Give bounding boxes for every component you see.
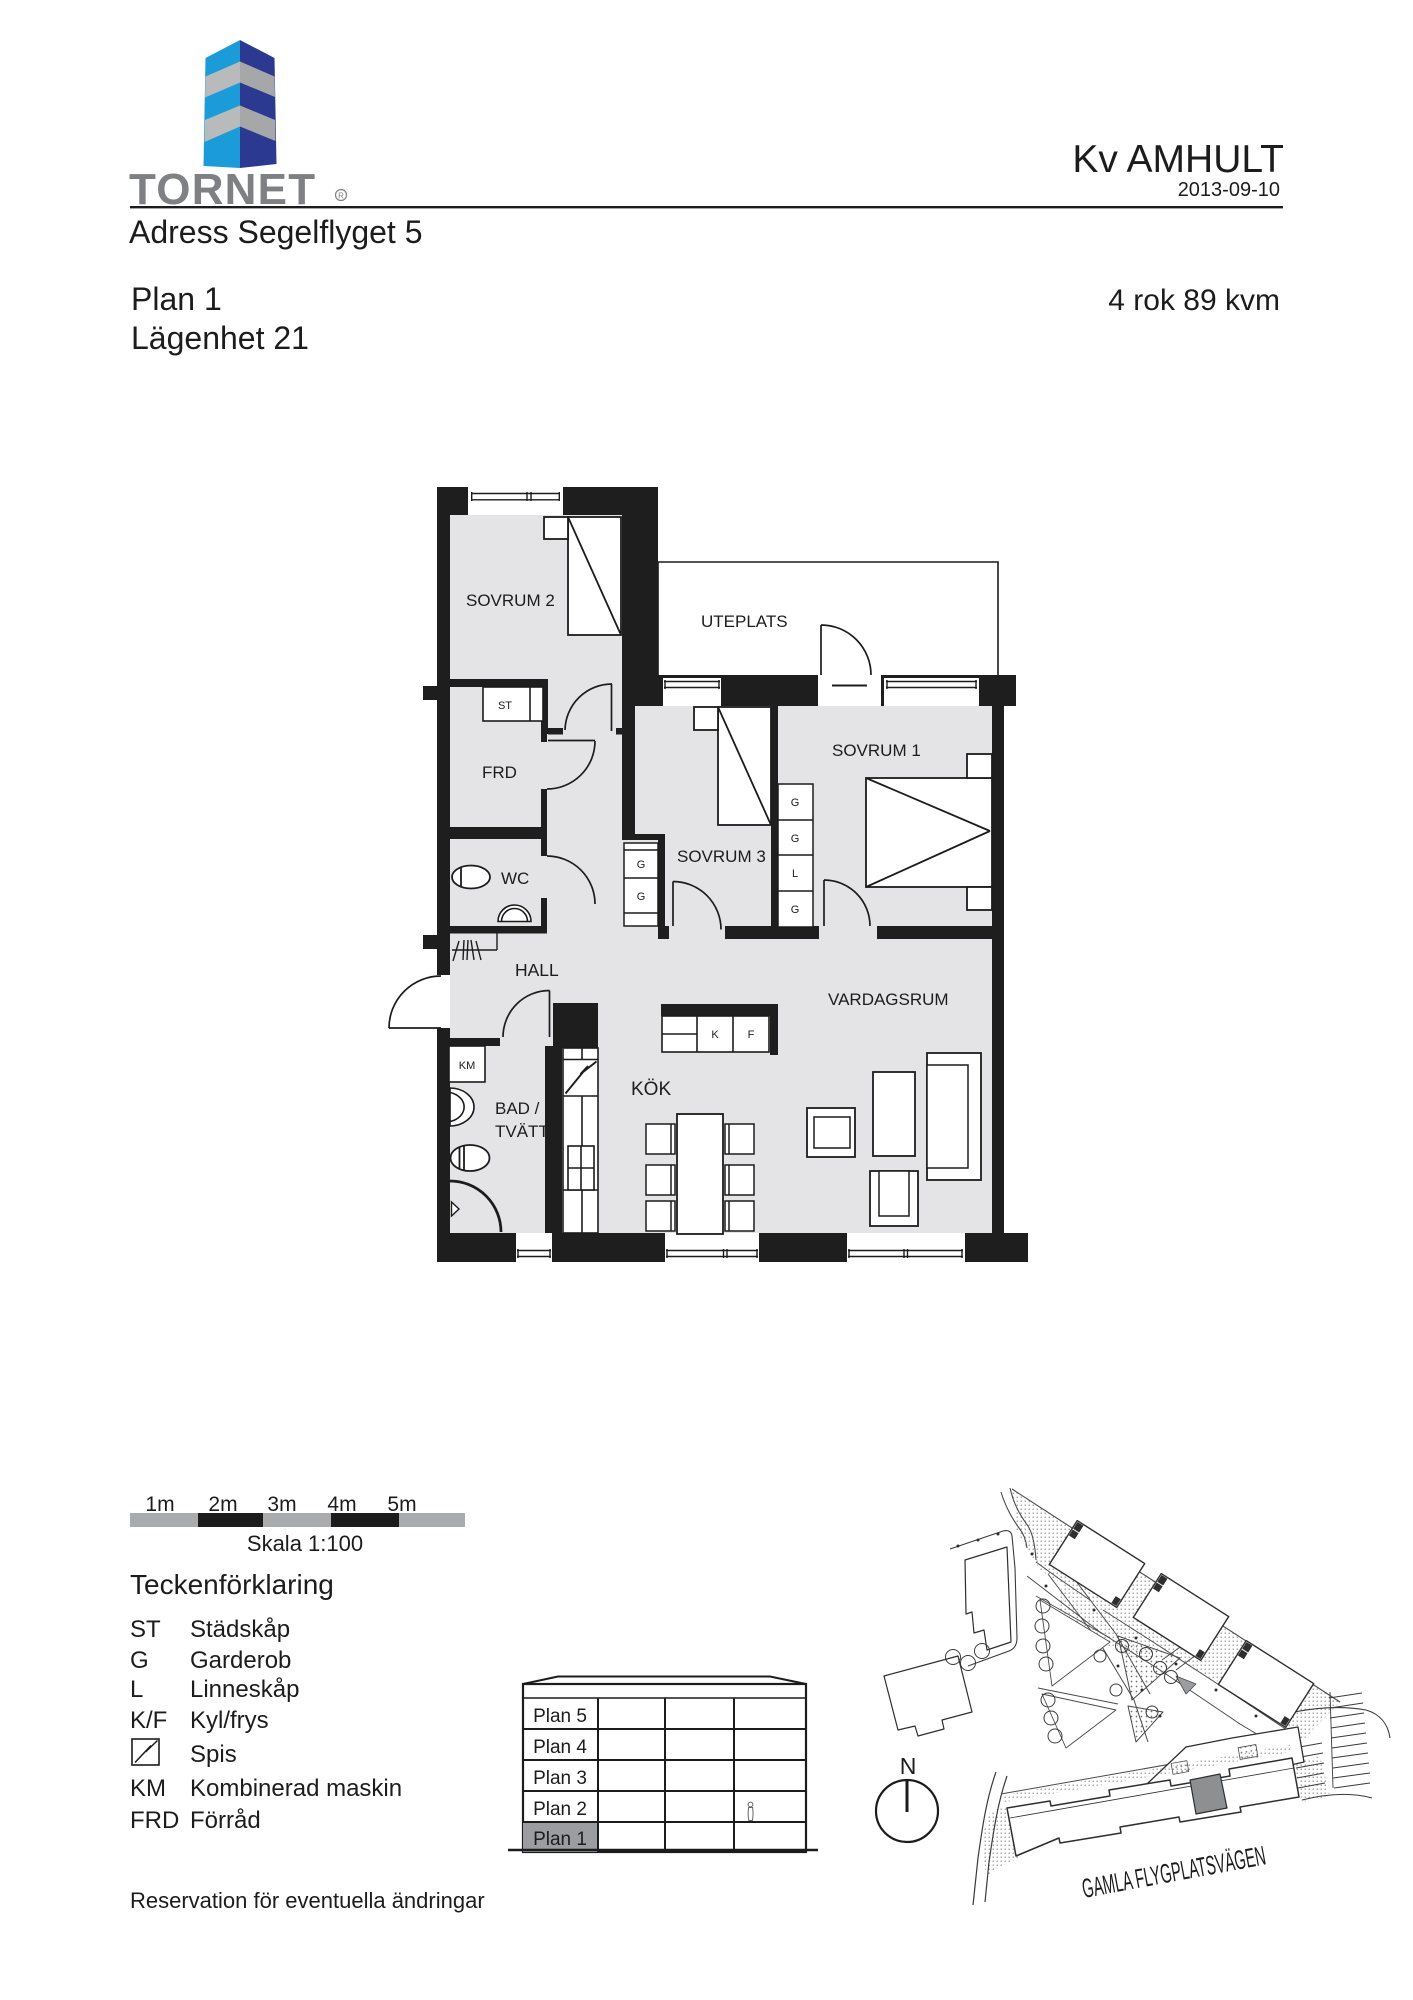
svg-text:4 rok 89 kvm: 4 rok 89 kvm <box>1108 284 1280 317</box>
svg-text:KM: KM <box>130 1775 166 1802</box>
svg-text:4m: 4m <box>327 1493 356 1516</box>
svg-text:HALL: HALL <box>515 960 559 980</box>
svg-text:SOVRUM 3: SOVRUM 3 <box>677 847 766 866</box>
svg-text:Skala 1:100: Skala 1:100 <box>247 1531 363 1556</box>
svg-text:Linneskåp: Linneskåp <box>190 1676 299 1703</box>
svg-text:F: F <box>748 1029 755 1041</box>
svg-text:Reservation för eventuella änd: Reservation för eventuella ändringar <box>130 1888 485 1913</box>
svg-text:KM: KM <box>459 1060 476 1072</box>
svg-text:L: L <box>792 868 798 880</box>
svg-text:Förråd: Förråd <box>190 1807 261 1834</box>
svg-text:BAD /: BAD / <box>495 1099 540 1118</box>
svg-text:N: N <box>900 1753 917 1779</box>
svg-text:Plan 1: Plan 1 <box>131 281 222 317</box>
svg-text:2013-09-10: 2013-09-10 <box>1178 179 1280 201</box>
svg-text:KÖK: KÖK <box>631 1079 671 1100</box>
svg-text:ST: ST <box>130 1616 161 1643</box>
svg-text:G: G <box>637 891 646 903</box>
svg-text:K/F: K/F <box>130 1707 167 1734</box>
svg-text:Kombinerad maskin: Kombinerad maskin <box>190 1775 402 1802</box>
svg-text:FRD: FRD <box>130 1807 179 1834</box>
svg-text:3m: 3m <box>267 1493 296 1516</box>
svg-text:TVÄTT: TVÄTT <box>495 1122 549 1141</box>
svg-text:Garderob: Garderob <box>190 1647 291 1674</box>
svg-text:G: G <box>791 833 800 845</box>
svg-text:SOVRUM 1: SOVRUM 1 <box>832 741 921 760</box>
svg-text:Kyl/frys: Kyl/frys <box>190 1707 269 1734</box>
svg-text:WC: WC <box>501 869 529 888</box>
svg-text:Spis: Spis <box>190 1741 237 1768</box>
svg-text:ST: ST <box>498 700 512 712</box>
svg-text:1m: 1m <box>145 1493 174 1516</box>
svg-text:K: K <box>711 1029 719 1041</box>
svg-text:SOVRUM 2: SOVRUM 2 <box>466 591 555 610</box>
svg-text:Städskåp: Städskåp <box>190 1616 290 1643</box>
svg-text:Adress Segelflyget 5: Adress Segelflyget 5 <box>129 214 423 250</box>
svg-text:G: G <box>791 904 800 916</box>
svg-text:R: R <box>338 192 344 201</box>
svg-text:UTEPLATS: UTEPLATS <box>701 612 788 631</box>
svg-text:2m: 2m <box>208 1493 237 1516</box>
svg-text:Plan 2: Plan 2 <box>533 1799 587 1820</box>
svg-text:Lägenhet 21: Lägenhet 21 <box>131 320 309 356</box>
svg-text:5m: 5m <box>387 1493 416 1516</box>
svg-text:L: L <box>130 1676 143 1703</box>
svg-text:G: G <box>637 859 646 871</box>
svg-text:Plan 4: Plan 4 <box>533 1737 587 1758</box>
svg-text:G: G <box>130 1647 149 1674</box>
svg-text:GAMLA FLYGPLATSVÄGEN: GAMLA FLYGPLATSVÄGEN <box>1080 1841 1268 1904</box>
svg-text:Plan 1: Plan 1 <box>533 1829 587 1850</box>
svg-text:Plan 5: Plan 5 <box>533 1706 587 1727</box>
svg-text:Kv AMHULT: Kv AMHULT <box>1072 138 1284 181</box>
svg-text:Plan 3: Plan 3 <box>533 1768 587 1789</box>
svg-text:Teckenförklaring: Teckenförklaring <box>130 1569 334 1600</box>
svg-text:VARDAGSRUM: VARDAGSRUM <box>828 990 949 1009</box>
svg-text:G: G <box>791 797 800 809</box>
svg-text:FRD: FRD <box>482 763 517 782</box>
